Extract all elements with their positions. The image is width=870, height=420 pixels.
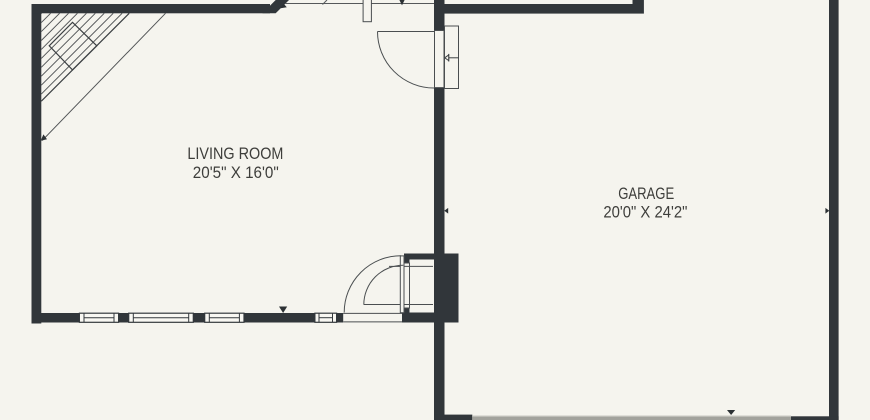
svg-text:20'5" X 16'0": 20'5" X 16'0" — [193, 163, 279, 182]
svg-text:20'0" X 24'2": 20'0" X 24'2" — [603, 203, 687, 222]
svg-text:GARAGE: GARAGE — [618, 185, 674, 203]
svg-text:LIVING ROOM: LIVING ROOM — [187, 144, 283, 163]
